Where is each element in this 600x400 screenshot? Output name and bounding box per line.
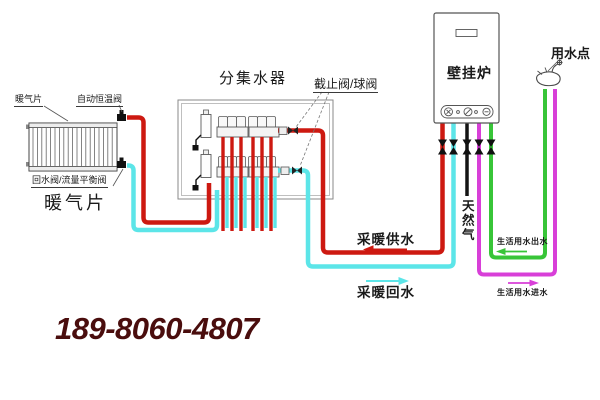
dhw-in-arrow-head	[530, 280, 540, 287]
shutoff-valve-icon	[487, 147, 496, 155]
boiler-label: 壁挂炉	[447, 66, 492, 81]
thermostatic-valve-label: 自动恒温阀	[76, 95, 123, 107]
manifold-bar	[217, 127, 248, 137]
valve-body	[281, 167, 289, 175]
shutoff-valve-icon	[449, 140, 458, 148]
stop-valve-label: 截止阀/球阀	[313, 78, 378, 93]
manifold-end-valve	[201, 115, 211, 138]
shutoff-valve-icon	[449, 147, 458, 155]
heating-supply-label: 采暖供水	[357, 233, 415, 248]
manifold-bar	[249, 127, 279, 137]
manifold-valve-cap	[258, 117, 267, 128]
manifold-label: 分集水器	[219, 71, 287, 88]
manifold-valve-cap	[249, 117, 258, 128]
boiler-vent-slot	[456, 30, 477, 37]
phone-number: 189-8060-4807	[55, 311, 261, 346]
return-valve-icon	[117, 161, 126, 168]
valve-body	[279, 127, 287, 135]
return-arrow-head	[399, 277, 410, 285]
shutoff-valve-icon	[475, 140, 484, 148]
shutoff-valve-icon	[463, 140, 472, 148]
manifold-valve-cap	[228, 117, 237, 128]
manifold-valve-cap	[267, 117, 276, 128]
tap-label: 用水点	[551, 47, 590, 61]
manifold-valve-cap	[219, 117, 228, 128]
return-valve-icon	[120, 158, 124, 162]
shutoff-valve-icon	[438, 140, 447, 148]
radiator	[26, 110, 126, 171]
drain-valve-icon	[193, 145, 199, 151]
faucet-icon	[537, 60, 563, 86]
heating-system-diagram: 189-8060-4807 暖气片 自动恒温阀 回水阀/流量平衡阀 暖气片 分集…	[0, 0, 600, 400]
radiator-label-large: 暖气片	[44, 194, 107, 214]
faucet-body	[537, 72, 561, 86]
manifold-valve-cap	[237, 117, 246, 128]
return-valve-label: 回水阀/流量平衡阀	[31, 176, 108, 188]
thermostatic-valve-icon	[117, 114, 126, 121]
dhw-out-arrow-head	[496, 248, 506, 255]
shutoff-valve-icon	[438, 147, 447, 155]
shutoff-valve-icon	[463, 147, 472, 155]
dhw-inlet-label: 生活用水进水	[497, 289, 548, 298]
radiator-top-header	[29, 123, 117, 128]
shutoff-valve-icon	[487, 140, 496, 148]
faucet-spout	[552, 64, 558, 72]
heating-return-label: 采暖回水	[357, 286, 415, 301]
radiator-label-small: 暖气片	[14, 95, 43, 107]
shutoff-valve-icon	[475, 147, 484, 155]
manifold-end-valve	[201, 155, 211, 178]
dhw-outlet-label: 生活用水出水	[497, 238, 548, 247]
radiator-bottom-header	[29, 167, 117, 172]
gas-label: 天然气	[459, 199, 473, 243]
drain-valve-icon	[193, 185, 199, 191]
